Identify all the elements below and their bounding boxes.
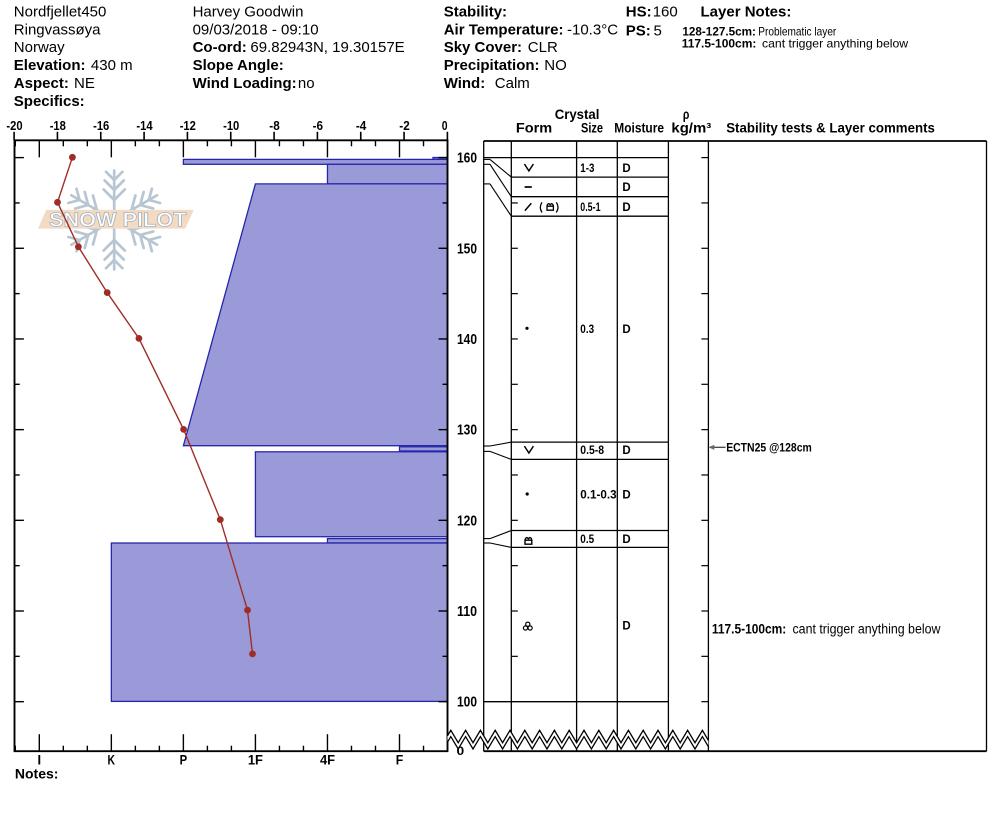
- svg-text:120: 120: [457, 512, 477, 529]
- svg-text:-20: -20: [6, 118, 22, 133]
- svg-text:Norway: Norway: [14, 39, 65, 56]
- svg-text:-10: -10: [223, 118, 239, 133]
- svg-text:09/03/2018 - 09:10: 09/03/2018 - 09:10: [193, 22, 319, 39]
- svg-text:160: 160: [653, 4, 678, 21]
- svg-text:-4: -4: [356, 118, 367, 133]
- svg-text:K: K: [108, 751, 116, 767]
- svg-text:Air Temperature:: Air Temperature:: [444, 22, 564, 39]
- svg-text:D: D: [622, 445, 630, 457]
- svg-text:Layer Notes:: Layer Notes:: [701, 4, 792, 21]
- svg-text:-2: -2: [399, 118, 409, 133]
- svg-text:Wind Loading:: Wind Loading:: [193, 75, 297, 92]
- svg-text:-16: -16: [93, 118, 109, 133]
- svg-text:ECTN25 @128cm: ECTN25 @128cm: [726, 443, 812, 455]
- svg-text:0.5: 0.5: [580, 534, 594, 546]
- svg-text:117.5-100cm:: 117.5-100cm:: [712, 622, 786, 637]
- svg-text:117.5-100cm:: 117.5-100cm:: [682, 37, 757, 51]
- svg-text:D: D: [622, 490, 630, 502]
- svg-text:5: 5: [654, 22, 662, 39]
- svg-text:D: D: [622, 324, 630, 336]
- svg-text:NE: NE: [74, 75, 95, 92]
- svg-text:1F: 1F: [248, 751, 264, 767]
- svg-text:no: no: [298, 75, 315, 92]
- svg-text:150: 150: [457, 240, 477, 257]
- svg-text:-12: -12: [180, 118, 196, 133]
- svg-text:cant trigger anything below: cant trigger anything below: [762, 37, 908, 51]
- svg-text:430 m: 430 m: [91, 57, 133, 74]
- svg-text:Moisture: Moisture: [614, 120, 664, 136]
- svg-text:160: 160: [457, 150, 477, 167]
- svg-text:Calm: Calm: [495, 75, 530, 92]
- svg-text:Harvey Goodwin: Harvey Goodwin: [193, 4, 304, 21]
- svg-text:Elevation:: Elevation:: [14, 57, 86, 74]
- svg-text:Size: Size: [581, 120, 603, 136]
- svg-text:D: D: [622, 621, 630, 633]
- svg-text:110: 110: [457, 603, 477, 620]
- svg-text:-18: -18: [50, 118, 66, 133]
- svg-text:-8: -8: [269, 118, 279, 133]
- svg-text:CLR: CLR: [528, 39, 558, 56]
- svg-text:Wind:: Wind:: [444, 75, 486, 92]
- svg-text:D: D: [622, 163, 630, 175]
- svg-text:0.5-1: 0.5-1: [580, 202, 601, 214]
- svg-text:0.1-0.3: 0.1-0.3: [580, 490, 616, 502]
- svg-text:cant trigger anything below: cant trigger anything below: [793, 622, 941, 637]
- svg-text:-10.3°C: -10.3°C: [567, 22, 618, 39]
- svg-text:F: F: [396, 751, 404, 767]
- svg-text:D: D: [622, 182, 630, 194]
- svg-text:Aspect:: Aspect:: [14, 75, 69, 92]
- svg-text:P: P: [180, 751, 188, 767]
- svg-text:Stability tests & Layer commen: Stability tests & Layer comments: [726, 120, 935, 136]
- svg-text:Slope Angle:: Slope Angle:: [193, 57, 284, 74]
- svg-text:100: 100: [457, 694, 477, 711]
- svg-text:140: 140: [457, 331, 477, 348]
- svg-text:Ringvassøya: Ringvassøya: [14, 22, 101, 39]
- svg-text:1-3: 1-3: [580, 163, 594, 175]
- svg-text:-14: -14: [136, 118, 153, 133]
- svg-text:0: 0: [442, 118, 448, 133]
- svg-text:Notes:: Notes:: [15, 766, 59, 782]
- svg-text:Specifics:: Specifics:: [14, 93, 85, 110]
- svg-text:4F: 4F: [320, 751, 336, 767]
- svg-text:Precipitation:: Precipitation:: [444, 57, 540, 74]
- svg-text:HS:: HS:: [626, 4, 652, 21]
- svg-text:Co-ord:: Co-ord:: [193, 39, 247, 56]
- svg-text:Sky Cover:: Sky Cover:: [444, 39, 522, 56]
- svg-text:69.82943N, 19.30157E: 69.82943N, 19.30157E: [250, 39, 404, 56]
- svg-text:0.3: 0.3: [580, 324, 594, 336]
- svg-text:D: D: [622, 534, 630, 546]
- svg-text:0.5-8: 0.5-8: [580, 445, 604, 457]
- svg-text:Stability:: Stability:: [444, 4, 507, 21]
- svg-text:D: D: [622, 202, 630, 214]
- svg-text:130: 130: [457, 422, 477, 439]
- svg-text:Nordfjellet450: Nordfjellet450: [14, 4, 107, 21]
- svg-text:Form: Form: [516, 120, 552, 136]
- svg-text:PS:: PS:: [626, 22, 651, 39]
- svg-text:kg/m³: kg/m³: [671, 120, 711, 136]
- svg-text:NO: NO: [544, 57, 567, 74]
- svg-text:-6: -6: [313, 118, 323, 133]
